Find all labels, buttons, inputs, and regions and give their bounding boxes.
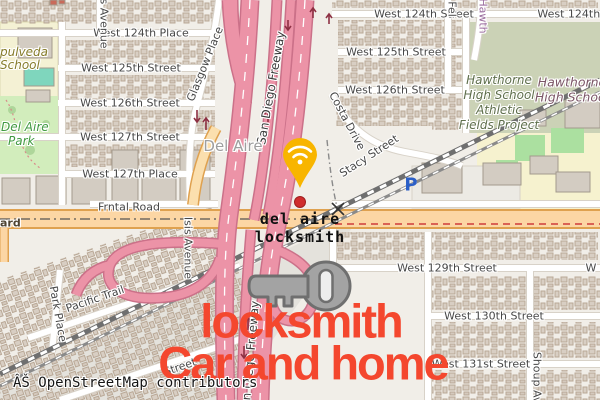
place-label-del-aire: Del Aire <box>203 137 262 155</box>
osm-attribution: ÂŠ OpenStreetMap contributors <box>13 375 257 391</box>
campus-building <box>483 163 521 185</box>
street-label: West 124th S <box>537 8 600 21</box>
street-label: West 126th Street <box>345 84 445 97</box>
street-label: West 125th Street <box>81 62 181 75</box>
boulevard-label-fragment: ard <box>0 217 21 230</box>
street-label: West 127th Place <box>82 168 178 181</box>
parking-icon: P <box>404 175 417 196</box>
athletic-fields-label: Hawthorne <box>466 73 532 87</box>
high-school-label: High School <box>535 90 600 105</box>
athletic-fields-label: Athletic <box>476 103 522 117</box>
sports-pitch <box>551 128 584 153</box>
street-label: Fel <box>446 1 459 17</box>
high-school-label: Hawthorne <box>538 75 600 90</box>
street-label: West 127th Street <box>80 131 180 144</box>
campus-building <box>556 172 590 192</box>
street-label: Shoup Ave <box>531 352 544 400</box>
street-label: Isis Avenue <box>182 217 195 279</box>
street-label: is Avenue <box>98 0 111 49</box>
poi-pin[interactable] <box>265 130 335 210</box>
street-label: West 124th Street <box>374 8 474 21</box>
poi-name-line1: del aire <box>260 210 340 228</box>
map-canvas[interactable]: West 124th Place West 125th Street West … <box>0 0 600 400</box>
street-label: West 126th Street <box>80 97 180 110</box>
poi-name-line2: locksmith <box>255 228 345 246</box>
campus-building <box>530 156 558 174</box>
school-label: School <box>0 58 40 72</box>
street-label: West 130th Street <box>444 310 544 323</box>
street-label: W <box>586 262 597 275</box>
street-label: Hawth <box>477 0 490 34</box>
park-label: Del Aire <box>1 120 49 134</box>
park-label: Park <box>8 134 34 148</box>
street-label: West 125th Street <box>346 46 446 59</box>
poi-dot-icon <box>295 197 306 208</box>
school-label: pulveda <box>0 45 48 59</box>
street-label: Frntal Road <box>98 201 160 214</box>
athletic-fields-label: High School <box>463 88 534 102</box>
athletic-fields-label: Fields Project <box>459 118 539 132</box>
street-label: West 129th Street <box>397 262 497 275</box>
tree-icon <box>8 106 16 114</box>
